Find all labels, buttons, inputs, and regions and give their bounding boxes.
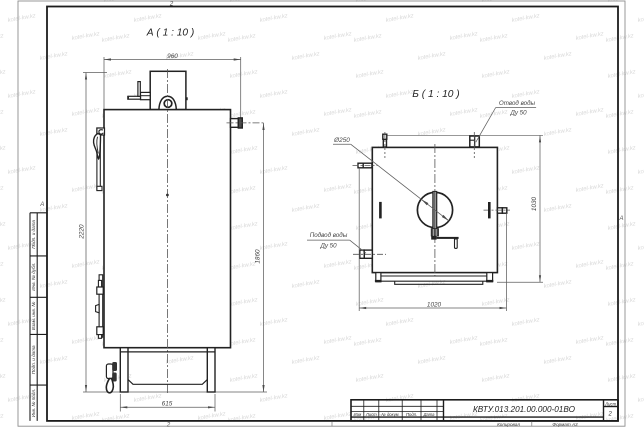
svg-text:2: 2	[169, 1, 174, 7]
svg-text:Отвод воды: Отвод воды	[499, 100, 536, 107]
svg-text:Ду 50: Ду 50	[509, 110, 527, 117]
svg-text:А: А	[39, 202, 44, 208]
svg-text:Дата: Дата	[422, 412, 435, 417]
svg-text:2: 2	[608, 412, 613, 418]
svg-text:Лист: Лист	[604, 401, 616, 406]
svg-text:Формат А3: Формат А3	[552, 422, 578, 427]
svg-text:Б ( 1 : 10 ): Б ( 1 : 10 )	[412, 89, 459, 100]
svg-text:Копировал: Копировал	[497, 422, 520, 427]
svg-text:Ø250: Ø250	[333, 137, 350, 144]
svg-text:2: 2	[166, 422, 171, 428]
svg-text:1860: 1860	[254, 249, 261, 264]
svg-text:Ду 50: Ду 50	[319, 242, 337, 249]
svg-text:Подп.: Подп.	[406, 412, 417, 417]
svg-text:Инв. № дубл.: Инв. № дубл.	[31, 262, 36, 290]
svg-text:Подвод воды: Подвод воды	[310, 232, 348, 239]
svg-text:1020: 1020	[427, 302, 442, 309]
svg-text:КВТУ.013.201.00.000-01ВО: КВТУ.013.201.00.000-01ВО	[473, 405, 576, 414]
svg-text:Лист: Лист	[365, 412, 377, 417]
svg-text:2220: 2220	[78, 224, 85, 240]
svg-text:Инв. № подл.: Инв. № подл.	[31, 389, 36, 418]
svg-text:Взам. инв. №: Взам. инв. №	[31, 302, 36, 330]
svg-text:615: 615	[162, 401, 173, 408]
svg-text:1030: 1030	[531, 196, 538, 211]
svg-text:Подп. и дата: Подп. и дата	[31, 345, 36, 374]
svg-text:Изм: Изм	[354, 412, 362, 417]
svg-text:№ докум.: № докум.	[381, 412, 399, 417]
svg-text:Подп. и дата: Подп. и дата	[31, 220, 36, 249]
svg-text:А ( 1 : 10 ): А ( 1 : 10 )	[146, 28, 195, 39]
svg-text:А: А	[618, 216, 623, 222]
